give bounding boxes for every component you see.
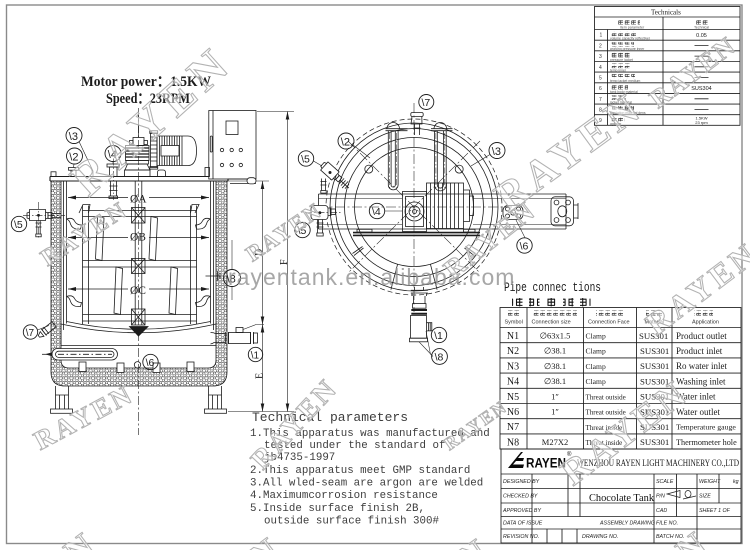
svg-text:\1: \1 — [434, 330, 443, 342]
svg-text:Connection size: Connection size — [532, 320, 571, 326]
svg-text:N5: N5 — [507, 392, 519, 403]
svg-text:SCALE: SCALE — [656, 479, 674, 485]
svg-text:RAYEN: RAYEN — [150, 528, 290, 550]
svg-text:2: 2 — [599, 44, 602, 50]
svg-text:5: 5 — [599, 76, 602, 82]
svg-text:WEIGHT: WEIGHT — [699, 479, 721, 485]
svg-text:temp inner: temp inner — [610, 69, 627, 73]
svg-text:item parameter: item parameter — [620, 26, 645, 30]
svg-text:∅38.1: ∅38.1 — [544, 361, 566, 371]
svg-text:\3: \3 — [69, 131, 78, 143]
svg-text:N7: N7 — [507, 422, 519, 433]
svg-text:Temperature gauge: Temperature gauge — [676, 423, 736, 432]
svg-text:Symbol: Symbol — [505, 320, 523, 326]
svg-text:Connection Face: Connection Face — [588, 320, 630, 326]
svg-text:6: 6 — [599, 86, 602, 92]
svg-text:Clamp: Clamp — [586, 332, 606, 341]
svg-text:\6: \6 — [520, 241, 529, 253]
svg-text:Product inlet: Product inlet — [676, 346, 723, 356]
svg-text:\4: \4 — [372, 206, 381, 218]
svg-text:Thermometer hole: Thermometer hole — [676, 438, 737, 447]
svg-text:APPROVED BY: APPROVED BY — [502, 508, 541, 514]
svg-text:∅38.1: ∅38.1 — [544, 346, 566, 356]
svg-text:ØA: ØA — [130, 194, 147, 206]
svg-text:Technicals: Technicals — [651, 9, 681, 17]
svg-text:∅63x1.5: ∅63x1.5 — [540, 331, 571, 341]
svg-text:RAYEN: RAYEN — [554, 372, 697, 494]
svg-text:N3: N3 — [507, 361, 519, 372]
svg-text:REVISION NO.: REVISION NO. — [503, 534, 539, 540]
svg-text:ØC: ØC — [130, 285, 146, 297]
svg-text:Application: Application — [692, 320, 719, 326]
svg-text:ØB: ØB — [130, 232, 146, 244]
svg-text:DATA OF ISSUE: DATA OF ISSUE — [503, 521, 543, 527]
svg-text:2.This apparatus meet GMP stan: 2.This apparatus meet GMP standard — [250, 465, 470, 477]
svg-text:\2: \2 — [341, 136, 350, 148]
svg-text:Chocolate Tank: Chocolate Tank — [589, 492, 654, 504]
svg-text:Clamp: Clamp — [586, 377, 606, 386]
svg-text:\5: \5 — [14, 219, 23, 231]
svg-text:RAYEN: RAYEN — [359, 530, 496, 550]
svg-text:temp jacket medium: temp jacket medium — [610, 79, 641, 83]
svg-text:RAYEN: RAYEN — [241, 197, 326, 266]
svg-text:\7: \7 — [26, 328, 35, 339]
svg-text:1: 1 — [600, 33, 603, 39]
svg-text:SUS301: SUS301 — [640, 361, 669, 371]
svg-text:Washing inlet: Washing inlet — [676, 376, 726, 386]
svg-text:Threat outside: Threat outside — [586, 393, 626, 401]
svg-text:RAYEN: RAYEN — [0, 523, 105, 550]
svg-text:CAD: CAD — [656, 508, 667, 514]
svg-text:pressure jacket: pressure jacket — [610, 58, 633, 62]
svg-text:outside surface finish 300#: outside surface finish 300# — [264, 516, 439, 528]
svg-text:CHECKED BY: CHECKED BY — [503, 494, 538, 500]
svg-text:N4: N4 — [507, 377, 519, 388]
svg-text:\7: \7 — [422, 97, 431, 109]
svg-text:DRAWING NO.: DRAWING NO. — [582, 534, 618, 540]
svg-text:SHEET 1 OF: SHEET 1 OF — [699, 508, 731, 514]
svg-text:M27X2: M27X2 — [542, 437, 568, 447]
svg-text:RAYEN: RAYEN — [29, 378, 139, 455]
svg-text:N2: N2 — [507, 346, 519, 357]
svg-text:Ro water inlet: Ro water inlet — [676, 361, 727, 371]
svg-text:\6: \6 — [146, 357, 155, 369]
svg-text:0.05: 0.05 — [696, 33, 707, 39]
svg-text:volume capacity (effective): volume capacity (effective) — [610, 37, 650, 41]
svg-text:SIZE: SIZE — [699, 494, 711, 500]
svg-text:5.Inside surface finish 2B,: 5.Inside surface finish 2B, — [250, 503, 425, 515]
svg-text:kg: kg — [733, 479, 739, 485]
svg-text:1″: 1″ — [551, 407, 559, 417]
svg-text:Clamp: Clamp — [586, 362, 606, 371]
svg-text:FILE NO.: FILE NO. — [656, 521, 678, 527]
svg-text:\1: \1 — [251, 351, 260, 362]
svg-text:∅38.1: ∅38.1 — [544, 376, 566, 386]
svg-text:RAYEN: RAYEN — [639, 234, 750, 341]
svg-text:\5: \5 — [301, 154, 310, 166]
svg-text:4.Maximumcorrosion resistance: 4.Maximumcorrosion resistance — [250, 490, 438, 502]
svg-text:N1: N1 — [507, 331, 519, 342]
svg-text:\3: \3 — [492, 146, 501, 158]
svg-text:N8: N8 — [507, 437, 519, 448]
svg-text:3.All wled-seam are argon are: 3.All wled-seam are argon are welded — [250, 478, 483, 490]
svg-text:SUS301: SUS301 — [640, 346, 669, 356]
svg-text:ASSEMBLY DRAWING: ASSEMBLY DRAWING — [599, 521, 655, 527]
svg-text:Clamp: Clamp — [586, 347, 606, 356]
svg-text:P/N: P/N — [656, 494, 665, 500]
svg-text:E: E — [255, 373, 266, 379]
svg-text:Product outlet: Product outlet — [676, 331, 727, 341]
svg-text:Technical: Technical — [694, 26, 709, 30]
svg-text:DESIGNED BY: DESIGNED BY — [503, 479, 540, 485]
svg-text:23 rpm: 23 rpm — [695, 120, 708, 125]
svg-text:Pipe connec tions: Pipe connec tions — [504, 280, 601, 295]
svg-text:3: 3 — [599, 54, 602, 60]
svg-text:\8: \8 — [435, 352, 444, 364]
svg-text:working pressure inner: working pressure inner — [610, 47, 645, 51]
svg-text:4: 4 — [599, 65, 602, 71]
svg-text:1″: 1″ — [551, 391, 559, 401]
